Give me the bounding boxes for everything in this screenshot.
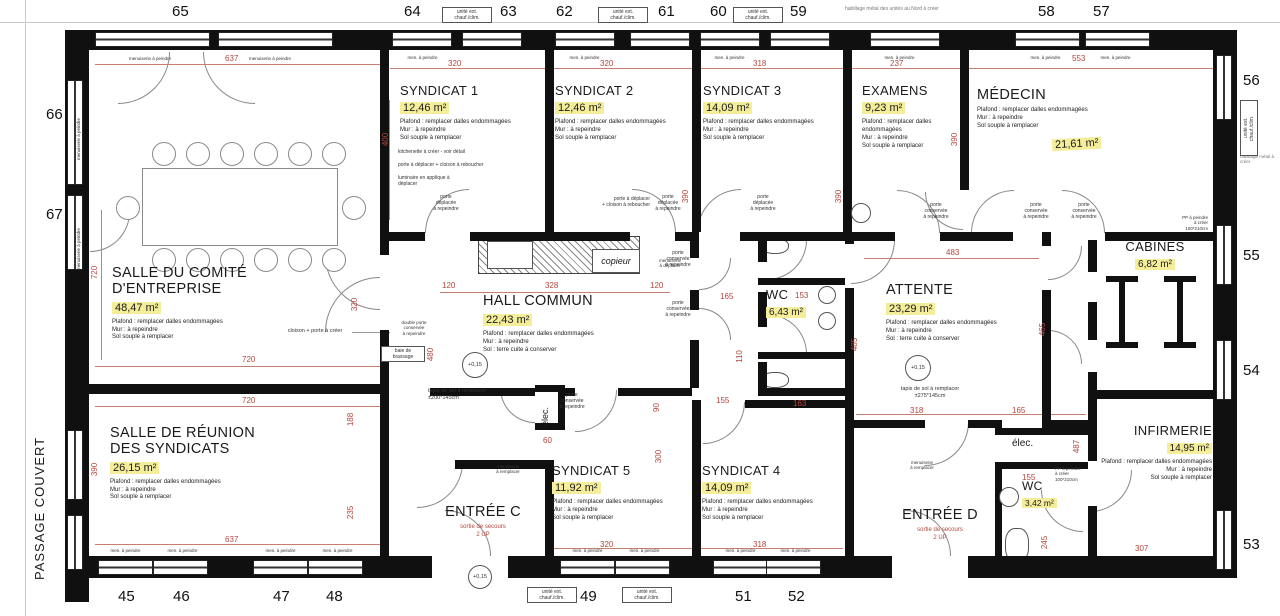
dimension-line xyxy=(95,366,380,367)
door-arc xyxy=(1048,246,1082,280)
window xyxy=(560,560,615,575)
carpet-note: tapis de sol à remplacer ±200*145cm xyxy=(428,388,518,401)
wall xyxy=(995,428,1088,435)
floor-plan: 65 64 63 62 61 60 59 58 57 45 46 47 48 4… xyxy=(0,0,1280,616)
wall xyxy=(850,420,925,428)
wall xyxy=(845,232,854,244)
dimension-label: 465 xyxy=(1038,323,1047,336)
room-name: SYNDICAT 2 xyxy=(555,84,695,98)
room-notes: Plafond : remplacer dalles endommagées M… xyxy=(400,119,545,142)
room-notes: Plafond : remplacer dalles endommagées M… xyxy=(886,320,1096,343)
window-note: men. à peindre xyxy=(395,55,450,60)
dimension-label: 120 xyxy=(442,281,455,290)
dimension-label: 483 xyxy=(946,248,959,257)
dimension-label: 390 xyxy=(90,463,99,476)
wall xyxy=(380,330,389,556)
chair xyxy=(186,142,210,166)
level-marker: +0,15 xyxy=(462,352,488,378)
window xyxy=(766,560,821,575)
entrance-gap xyxy=(892,556,968,578)
dimension-label: 320 xyxy=(448,59,461,68)
door-note: porte conservée à repeindre xyxy=(1016,202,1056,220)
dimension-label: 307 xyxy=(1135,544,1148,553)
room-notes: Plafond : remplacer dalles endommagées M… xyxy=(552,499,702,522)
dimension-line xyxy=(95,544,380,545)
grid-label: 67 xyxy=(46,206,63,223)
kitchenette-sink xyxy=(487,241,533,269)
window xyxy=(253,560,308,575)
dimension-label: 320 xyxy=(600,540,613,549)
room-name: ENTRÉE C xyxy=(428,505,538,521)
dimension-label: 155 xyxy=(1022,473,1035,482)
passage-couvert-label: PASSAGE COUVERT xyxy=(32,420,47,580)
room-area: 6,43 m² xyxy=(766,307,806,318)
dimension-label: 318 xyxy=(753,540,766,549)
light-note: luminaire en applique à déplacer xyxy=(398,175,488,187)
room-notes: Plafond : remplacer dalles endommagées M… xyxy=(702,499,852,522)
grid-label: 61 xyxy=(658,3,675,20)
pp-note: PP à peindre à créer 100*210cm xyxy=(1055,466,1100,482)
grid-label: 52 xyxy=(788,588,805,605)
room-name: ATTENTE xyxy=(886,283,1096,299)
grid-label: 63 xyxy=(500,3,517,20)
dimension-line xyxy=(95,64,380,65)
room-label-reunion: SALLE DE RÉUNION DES SYNDICATS 26,15 m² … xyxy=(110,426,380,502)
dimension-label: 245 xyxy=(1040,536,1049,549)
window xyxy=(555,32,615,47)
grid-label: 51 xyxy=(735,588,752,605)
level-marker: +0,15 xyxy=(468,565,492,589)
grid-label: 53 xyxy=(1243,536,1260,553)
grid-label: 47 xyxy=(273,588,290,605)
dimension-label: 120 xyxy=(650,281,663,290)
wall xyxy=(758,352,845,359)
room-notes: Plafond : remplacer dalles endommagées M… xyxy=(703,119,843,142)
door-arc xyxy=(703,402,745,444)
sink xyxy=(851,203,871,223)
room-notes: Plafond : remplacer dalles endommagées M… xyxy=(1096,459,1212,482)
partition-note: cloison + porte à créer xyxy=(275,328,355,335)
exit-label: sortie de secours 2 UP xyxy=(885,527,995,543)
grid-label: 66 xyxy=(46,106,63,123)
chair xyxy=(254,142,278,166)
dimension-label: 720 xyxy=(242,355,255,364)
grid-label: 57 xyxy=(1093,3,1110,20)
room-label-entreeD: ENTRÉE D sortie de secours 2 UP xyxy=(885,508,995,543)
window-note: men. à peindre xyxy=(310,548,365,553)
copier-box: copieur xyxy=(592,249,640,273)
dimension-line xyxy=(95,406,380,407)
wall xyxy=(758,232,767,262)
dimension-label: 390 xyxy=(834,190,843,203)
grid-label: 60 xyxy=(710,3,727,20)
room-area: 11,92 m² xyxy=(552,482,601,494)
room-name: EXAMENS xyxy=(862,84,962,98)
window xyxy=(1216,225,1232,285)
chair xyxy=(342,196,366,220)
dimension-label: 155 xyxy=(716,396,729,405)
dimension-label: 637 xyxy=(225,54,238,63)
exterior-unit-box: unité ext. chauf./clim. xyxy=(442,7,492,23)
room-name: SYNDICAT 3 xyxy=(703,84,843,98)
fixture-note: menuiserie à déplacer xyxy=(648,258,692,269)
window xyxy=(770,32,830,47)
dimension-line xyxy=(390,68,1213,69)
room-label-medecin: MÉDECIN Plafond : remplacer dalles endom… xyxy=(977,88,1207,130)
room-area: 14,09 m² xyxy=(702,482,751,494)
window xyxy=(392,32,452,47)
room-area: 14,95 m² xyxy=(1167,443,1212,454)
dimension-line xyxy=(864,258,1039,259)
room-area: 21,61 m² xyxy=(1052,137,1102,152)
door-note: porte conservée à repeindre xyxy=(552,392,592,410)
window-note: menuiserie à peindre xyxy=(240,56,300,61)
exterior-unit-box: unité ext. chauf./clim. xyxy=(527,587,577,603)
room-label-elec2: élec. xyxy=(1012,438,1033,449)
window xyxy=(67,430,83,500)
dimension-label: 90 xyxy=(652,403,661,412)
wall xyxy=(1088,372,1097,390)
pp-note: PP à peindre à créer 100*210cm xyxy=(1150,215,1208,231)
room-notes: Plafond : remplacer dalles endommagées M… xyxy=(483,331,703,354)
room-area: 12,46 m² xyxy=(555,102,604,114)
dimension-label: 163 xyxy=(793,399,806,408)
room-name: SALLE DE RÉUNION DES SYNDICATS xyxy=(110,426,380,458)
door-arc xyxy=(851,240,895,284)
dimension-label: 480 xyxy=(426,348,435,361)
room-name: SALLE DU COMITÉ D'ENTREPRISE xyxy=(112,266,382,298)
copier-label: copieur xyxy=(601,256,631,266)
grid-label: 54 xyxy=(1243,362,1260,379)
window-note: menuiserie à remplacer xyxy=(900,460,944,471)
wall xyxy=(1042,232,1051,246)
exterior-unit-box: unité ext. chauf./clim. xyxy=(733,7,783,23)
room-label-syndicat4: SYNDICAT 4 14,09 m² Plafond : remplacer … xyxy=(702,464,852,523)
wall xyxy=(968,420,1002,428)
window-note: men. à peindre xyxy=(617,548,672,553)
room-notes: Plafond : remplacer dalles endommagées M… xyxy=(110,479,380,502)
grid-label: 46 xyxy=(173,588,190,605)
wall xyxy=(995,462,1002,556)
room-label-examens: EXAMENS 9,23 m² Plafond : remplacer dall… xyxy=(862,84,962,150)
dimension-label: 300 xyxy=(654,450,663,463)
dimension-label: 400 xyxy=(381,133,390,146)
room-label-syndicat5: SYNDICAT 5 11,92 m² Plafond : remplacer … xyxy=(552,464,702,523)
window xyxy=(713,560,768,575)
grid-label: 48 xyxy=(326,588,343,605)
room-area: 9,23 m² xyxy=(862,102,905,114)
chair xyxy=(288,142,312,166)
chair xyxy=(220,142,244,166)
room-label-wc2: WC 3,42 m² xyxy=(1022,480,1082,511)
room-area: 48,47 m² xyxy=(112,302,161,314)
exit-label: sortie de secours 2 UP xyxy=(428,524,538,540)
window xyxy=(1085,32,1150,47)
grid-label: 49 xyxy=(580,588,597,605)
window xyxy=(630,32,690,47)
window xyxy=(95,32,210,47)
window xyxy=(1216,510,1232,570)
dimension-label: 720 xyxy=(242,396,255,405)
grid-label: 59 xyxy=(790,3,807,20)
room-name: MÉDECIN xyxy=(977,88,1207,104)
meeting-table xyxy=(142,168,338,246)
chair xyxy=(322,142,346,166)
window-note: men. à peindre xyxy=(1088,55,1143,60)
window xyxy=(153,560,208,575)
exterior-unit-box: unité ext. chauf./clim. xyxy=(1240,100,1258,156)
wall xyxy=(758,388,854,396)
chair xyxy=(152,142,176,166)
room-label-syndicat2: SYNDICAT 2 12,46 m² Plafond : remplacer … xyxy=(555,84,695,143)
chair xyxy=(116,196,140,220)
grid-label: 58 xyxy=(1038,3,1055,20)
dimension-label: 320 xyxy=(600,59,613,68)
medecin-area: 21,61 m² xyxy=(1052,133,1102,154)
room-name: ENTRÉE D xyxy=(885,508,995,524)
dimension-label: 188 xyxy=(346,413,355,426)
room-name: SYNDICAT 1 xyxy=(400,84,545,98)
door-note: porte à déplacer + cloison à reboucher xyxy=(398,162,518,168)
room-area: 6,82 m² xyxy=(1135,259,1175,270)
window-note: menuiserie à remplacer xyxy=(486,464,530,475)
door-note: porte conservée à repeindre xyxy=(1064,202,1104,220)
dimension-label: 637 xyxy=(225,535,238,544)
room-label-infirmerie: INFIRMERIE 14,95 m² Plafond : remplacer … xyxy=(1096,424,1212,483)
door-arc xyxy=(697,189,741,233)
level-marker: +0,15 xyxy=(905,355,931,381)
dimension-label: 390 xyxy=(681,190,690,203)
dimension-label: 110 xyxy=(735,350,744,363)
window-note: menuiserie à peindre xyxy=(76,210,81,270)
room-notes: Plafond : remplacer dalles endommagées M… xyxy=(555,119,695,142)
window-note: men. à peindre xyxy=(155,548,210,553)
dimension-label: 318 xyxy=(753,59,766,68)
room-notes: Plafond : remplacer dalles endommagées M… xyxy=(977,107,1207,130)
room-label-syndicat1: SYNDICAT 1 12,46 m² Plafond : remplacer … xyxy=(400,84,545,143)
sink xyxy=(999,487,1019,507)
door-note: double porte conservée à repeindre xyxy=(388,320,440,336)
wall xyxy=(89,384,380,394)
dimension-label: 237 xyxy=(890,59,903,68)
room-name: SYNDICAT 4 xyxy=(702,464,852,478)
dimension-label: 720 xyxy=(90,266,99,279)
door-note: porte à déplacer + cloison à reboucher xyxy=(545,196,650,208)
dimension-label: 487 xyxy=(1072,440,1081,453)
grid-label: 64 xyxy=(404,3,421,20)
wall xyxy=(758,278,845,285)
room-label-entreeC: ENTRÉE C sortie de secours 2 UP xyxy=(428,505,538,540)
window-note: men. à peindre xyxy=(702,55,757,60)
door-note: porte déplacée à repeindre xyxy=(745,194,781,212)
baie-brassage-box: baie de brassage xyxy=(381,346,425,362)
dimension-label: 485 xyxy=(850,338,859,351)
wall xyxy=(380,50,389,255)
room-name: INFIRMERIE xyxy=(1096,424,1212,438)
door-note: porte déplacée à repeindre xyxy=(428,194,464,212)
room-area: 12,46 m² xyxy=(400,102,449,114)
dimension-label: 60 xyxy=(543,436,552,445)
room-area: 23,29 m² xyxy=(886,303,935,315)
wall xyxy=(1088,390,1215,399)
dimension-label: 318 xyxy=(910,406,923,415)
window xyxy=(98,560,153,575)
wall xyxy=(470,232,630,241)
reference-line xyxy=(25,0,26,616)
cabine-partition xyxy=(1177,276,1183,348)
kitchenette-note: kitchenette à créer - voir détail xyxy=(398,149,508,155)
wall xyxy=(843,50,852,232)
window xyxy=(308,560,363,575)
dimension-label: 390 xyxy=(950,133,959,146)
dimension-label: 320 xyxy=(350,298,359,311)
grid-label: 56 xyxy=(1243,72,1260,89)
grid-label: 45 xyxy=(118,588,135,605)
room-label-cabines: CABINES 6,82 m² xyxy=(1100,240,1210,272)
room-area: 14,09 m² xyxy=(703,102,752,114)
wall xyxy=(845,288,854,420)
window xyxy=(615,560,670,575)
wall xyxy=(385,232,425,241)
room-label-elec1: élec. xyxy=(540,392,550,426)
room-label-syndicat3: SYNDICAT 3 14,09 m² Plafond : remplacer … xyxy=(703,84,843,143)
carpet-note: tapis de sol à remplacer ±275*145cm xyxy=(880,386,980,399)
wall xyxy=(940,232,1013,241)
window-note: menuiserie à peindre xyxy=(120,56,180,61)
dimension-label: 328 xyxy=(545,281,558,290)
room-area: 26,15 m² xyxy=(110,462,159,474)
exterior-unit-box: unité ext. chauf./clim. xyxy=(598,7,648,23)
door-note: porte conservée à repeindre xyxy=(916,202,956,220)
habillage-note: habillage métal des unités au Nord à cré… xyxy=(845,6,1035,12)
wall xyxy=(1047,420,1088,428)
room-area: 3,42 m² xyxy=(1022,498,1057,508)
room-area: 22,43 m² xyxy=(483,314,532,326)
grid-label: 65 xyxy=(172,3,189,20)
window xyxy=(218,32,333,47)
door-note: porte conservée à repeindre xyxy=(660,300,696,318)
dimension-label: 553 xyxy=(1072,54,1085,63)
dimension-line xyxy=(101,210,102,360)
window xyxy=(67,515,83,570)
dimension-label: 165 xyxy=(1012,406,1025,415)
wall xyxy=(1088,240,1097,272)
window xyxy=(870,32,940,47)
door-arc xyxy=(699,258,731,290)
wall xyxy=(1088,506,1097,556)
window xyxy=(1216,55,1232,120)
window-note: men. à peindre xyxy=(98,548,153,553)
cabine-partition xyxy=(1119,276,1125,348)
room-name: SYNDICAT 5 xyxy=(552,464,702,478)
window xyxy=(462,32,522,47)
window-note: men. à peindre xyxy=(253,548,308,553)
grid-label: 55 xyxy=(1243,247,1260,264)
window-note: men. à peindre xyxy=(1018,55,1073,60)
exterior-unit-box: unité ext. chauf./clim. xyxy=(622,587,672,603)
wall xyxy=(618,388,692,396)
room-name: CABINES xyxy=(1100,240,1210,254)
dimension-label: 165 xyxy=(720,292,733,301)
door-arc xyxy=(699,308,731,340)
door-arc xyxy=(971,190,1014,233)
dimension-line xyxy=(856,414,1086,415)
room-notes: Plafond : remplacer dalles endommagées M… xyxy=(862,119,962,150)
window xyxy=(1015,32,1080,47)
window-note: men. à peindre xyxy=(768,548,823,553)
dimension-line xyxy=(389,100,390,220)
grid-label: 62 xyxy=(556,3,573,20)
dimension-label: 235 xyxy=(346,506,355,519)
window xyxy=(1216,340,1232,400)
room-label-attente: ATTENTE 23,29 m² Plafond : remplacer dal… xyxy=(886,283,1096,343)
window xyxy=(700,32,760,47)
dimension-label: 153 xyxy=(795,291,808,300)
window-note: menuiserie à peindre xyxy=(76,100,81,160)
